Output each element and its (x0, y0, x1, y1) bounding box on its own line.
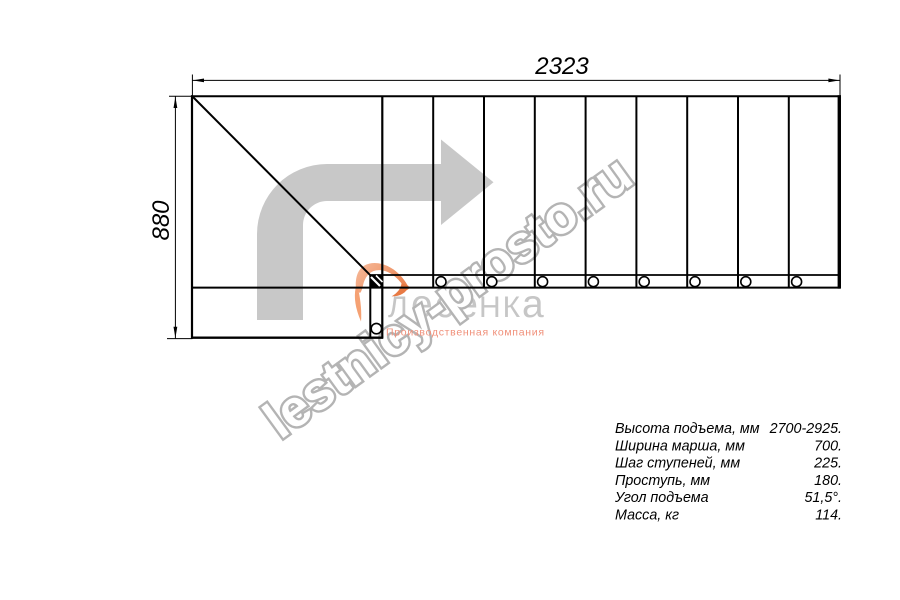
svg-text:880: 880 (148, 200, 175, 241)
svg-text:Ширина марша, мм: Ширина марша, мм (615, 438, 745, 454)
svg-text:Высота подъема, мм: Высота подъема, мм (615, 421, 760, 437)
svg-text:51,5°.: 51,5°. (804, 490, 842, 506)
svg-text:2323: 2323 (534, 53, 589, 80)
svg-text:114.: 114. (815, 508, 842, 524)
svg-text:180.: 180. (814, 473, 842, 489)
svg-text:Производственная компания: Производственная компания (386, 327, 544, 339)
svg-text:2700-2925.: 2700-2925. (769, 421, 842, 437)
svg-text:225.: 225. (813, 456, 842, 472)
svg-text:700.: 700. (814, 438, 842, 454)
svg-text:Масса, кг: Масса, кг (615, 508, 679, 524)
svg-text:Шаг ступеней, мм: Шаг ступеней, мм (615, 456, 740, 472)
svg-text:Проступь, мм: Проступь, мм (615, 473, 710, 489)
svg-text:Угол подъема: Угол подъема (614, 490, 709, 506)
